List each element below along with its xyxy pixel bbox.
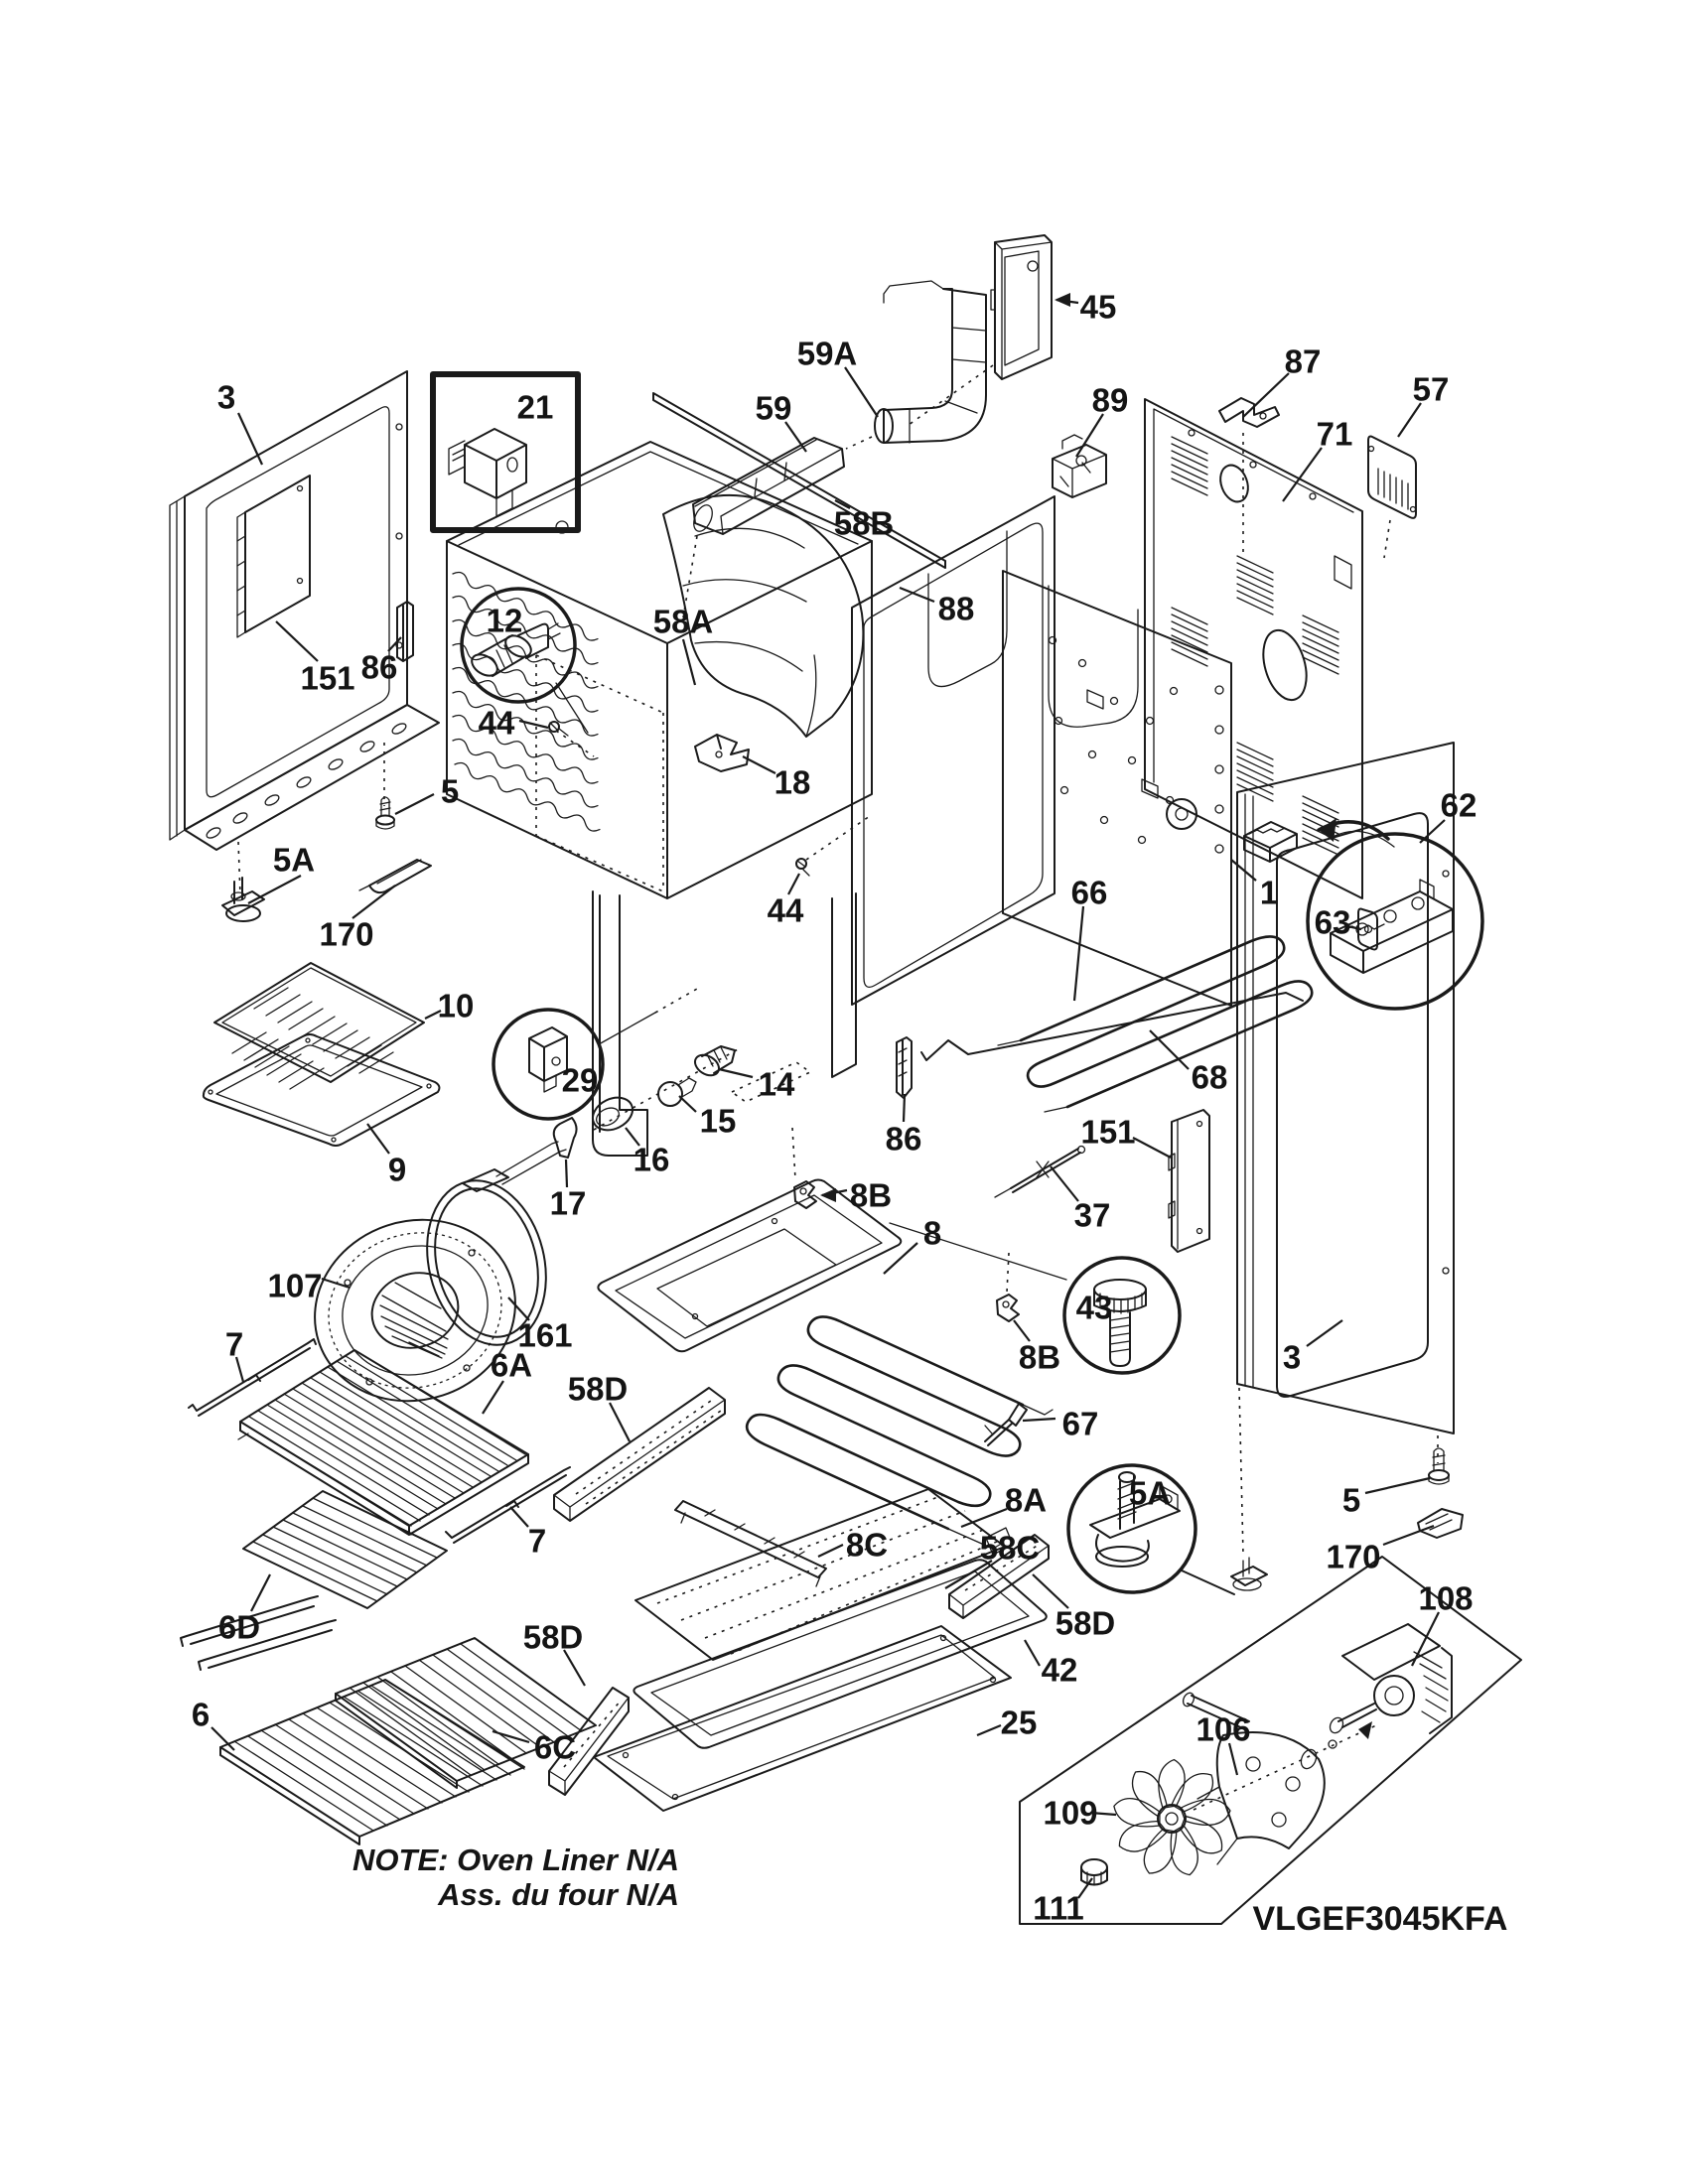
- leader-line-58D: [1033, 1574, 1068, 1608]
- rack-slide-7-upper: [189, 1339, 316, 1416]
- leader-line-6C: [492, 1731, 529, 1742]
- oven-rack-6A: [238, 1350, 528, 1535]
- clip-17: [554, 1118, 577, 1158]
- leader-line-88: [900, 588, 934, 602]
- leader-line-67: [1023, 1419, 1055, 1421]
- note-line-2: Ass. du four N/A: [437, 1877, 679, 1912]
- part-label-66: 66: [1071, 875, 1108, 911]
- rack-slide-7-lower: [446, 1467, 570, 1543]
- part-label-89: 89: [1092, 382, 1129, 419]
- part-label-63: 63: [1315, 904, 1351, 941]
- part-label-7: 7: [528, 1523, 546, 1560]
- part-label-151: 151: [1080, 1114, 1135, 1151]
- bracket-86-right: [897, 1037, 912, 1098]
- part-label-151: 151: [300, 660, 354, 697]
- part-label-44: 44: [479, 705, 515, 742]
- leader-line-59A: [845, 367, 878, 417]
- part-label-1: 1: [1260, 875, 1278, 911]
- leader-line-6D: [251, 1574, 270, 1611]
- fan-motor-108: [1299, 1624, 1452, 1771]
- leader-line-170: [1383, 1526, 1434, 1545]
- part-label-29: 29: [562, 1062, 599, 1099]
- note-line-1: NOTE: Oven Liner N/A: [352, 1843, 679, 1877]
- leader-line-15: [679, 1096, 696, 1112]
- part-label-5: 5: [441, 773, 459, 810]
- part-label-7: 7: [225, 1326, 243, 1363]
- broiler-pan-9: [204, 1034, 440, 1146]
- leader-line-86: [904, 1094, 905, 1122]
- leader-line-7: [510, 1507, 528, 1527]
- lamp-bulb-15: [658, 1082, 682, 1106]
- model-number: VLGEF3045KFA: [1253, 1900, 1508, 1938]
- part-label-59A: 59A: [797, 336, 858, 372]
- vent-duct-59: [690, 438, 844, 534]
- part-label-6D: 6D: [218, 1609, 260, 1646]
- leader-line-17: [566, 1160, 567, 1187]
- bottom-panel-25: [594, 1626, 1011, 1811]
- part-label-67: 67: [1062, 1406, 1099, 1442]
- leader-line-57: [1398, 403, 1421, 437]
- part-label-86: 86: [361, 649, 398, 686]
- leader-line-66: [1074, 906, 1083, 1001]
- bracket-170-left: [359, 860, 431, 892]
- part-label-88: 88: [938, 591, 975, 627]
- broiler-insert-10: [214, 963, 424, 1089]
- part-label-37: 37: [1074, 1197, 1111, 1234]
- leader-line-25: [977, 1725, 1001, 1735]
- leader-line-151: [1133, 1138, 1171, 1158]
- assembly-lines: [238, 365, 1438, 1810]
- part-label-17: 17: [550, 1185, 587, 1222]
- trim-strip-58B: [653, 393, 945, 568]
- insulation-strip-58D-a: [554, 1388, 725, 1521]
- part-label-45: 45: [1080, 289, 1117, 326]
- screw-5-left: [376, 797, 394, 829]
- part-label-58D: 58D: [1055, 1605, 1116, 1642]
- part-label-5: 5: [1342, 1482, 1360, 1519]
- part-label-87: 87: [1285, 343, 1322, 380]
- part-label-15: 15: [700, 1103, 737, 1140]
- clip-18: [695, 735, 749, 771]
- element-support-8C: [675, 1501, 826, 1586]
- leader-line-8: [884, 1243, 917, 1274]
- part-label-6C: 6C: [534, 1729, 576, 1766]
- insulation-panel-88: [852, 496, 1055, 1005]
- part-label-8: 8: [923, 1215, 941, 1252]
- fan-blade-109: [1112, 1758, 1232, 1877]
- clip-8B-lower: [997, 1295, 1019, 1321]
- part-label-18: 18: [774, 764, 811, 801]
- part-label-8B: 8B: [1019, 1339, 1060, 1376]
- bracket-89: [1053, 435, 1106, 497]
- part-label-3: 3: [217, 379, 235, 416]
- bolt-position-line: [890, 1223, 1066, 1280]
- screw-5-right: [1429, 1448, 1449, 1484]
- part-label-58D: 58D: [568, 1371, 629, 1408]
- range-parts-diagram: VLGEF3045KFA NOTE: Oven Liner N/A Ass. d…: [0, 0, 1688, 2184]
- part-label-12: 12: [487, 603, 523, 639]
- part-label-44: 44: [768, 892, 804, 929]
- fan-cover-107: [291, 1194, 539, 1427]
- part-label-9: 9: [388, 1152, 406, 1188]
- arrowhead-motor: [1358, 1721, 1372, 1739]
- part-label-8A: 8A: [1005, 1482, 1047, 1519]
- part-label-111: 111: [1033, 1890, 1083, 1927]
- part-label-107: 107: [267, 1268, 322, 1304]
- part-label-8B: 8B: [850, 1177, 892, 1214]
- part-label-86: 86: [886, 1121, 922, 1158]
- part-label-21: 21: [517, 389, 554, 426]
- insulation-panel-151-left: [237, 476, 310, 637]
- part-label-5A: 5A: [273, 842, 315, 879]
- part-label-108: 108: [1418, 1580, 1473, 1617]
- bracket-170-right: [1418, 1509, 1463, 1538]
- leader-line-1: [1231, 860, 1256, 881]
- part-label-5A: 5A: [1129, 1475, 1171, 1512]
- insulation-panel-151-right: [1169, 1110, 1209, 1252]
- screw-44b: [796, 859, 809, 876]
- leader-line-3: [1307, 1320, 1342, 1346]
- terminal-block-target: [1244, 822, 1297, 862]
- leader-line-42: [1025, 1640, 1040, 1666]
- part-label-106: 106: [1196, 1711, 1250, 1748]
- part-label-43: 43: [1076, 1290, 1113, 1326]
- part-label-62: 62: [1441, 787, 1477, 824]
- inset-box-21: [433, 374, 578, 530]
- part-label-170: 170: [1326, 1539, 1380, 1575]
- part-label-58D: 58D: [523, 1619, 584, 1656]
- leader-line-5: [1365, 1478, 1430, 1493]
- rear-panel-1: [1003, 571, 1231, 1006]
- leader-line-151: [276, 621, 318, 661]
- part-label-68: 68: [1192, 1059, 1228, 1096]
- part-label-25: 25: [1001, 1705, 1038, 1741]
- leader-line-45: [1056, 300, 1078, 303]
- part-label-8C: 8C: [846, 1527, 888, 1564]
- leader-line-6A: [483, 1381, 503, 1414]
- base-panel-42: [633, 1560, 1046, 1748]
- part-label-58A: 58A: [653, 604, 714, 640]
- side-panel-3-left: [170, 371, 439, 850]
- broil-element-66: [998, 936, 1312, 1112]
- vent-cover-57: [1368, 437, 1416, 518]
- oven-liner-note: NOTE: Oven Liner N/A Ass. du four N/A: [352, 1843, 679, 1912]
- probe-37: [995, 1147, 1085, 1198]
- leader-line-58D: [610, 1403, 630, 1441]
- leader-line-5A: [248, 876, 301, 903]
- part-label-58C: 58C: [980, 1530, 1041, 1567]
- part-label-10: 10: [438, 988, 475, 1024]
- leader-line-14: [719, 1069, 753, 1077]
- bracket-86-left: [397, 602, 413, 661]
- part-label-59: 59: [756, 390, 792, 427]
- leader-line-106: [1229, 1743, 1237, 1775]
- leader-line-5: [395, 794, 434, 814]
- part-label-14: 14: [759, 1066, 795, 1103]
- leader-line-44: [519, 721, 548, 728]
- screw-67: [985, 1404, 1027, 1445]
- bake-element-8A: [747, 1316, 1053, 1555]
- part-label-6A: 6A: [491, 1347, 532, 1384]
- part-label-109: 109: [1043, 1795, 1097, 1832]
- vent-cover-45: [991, 235, 1070, 379]
- vent-duct-59A: [875, 281, 986, 443]
- part-label-16: 16: [633, 1142, 670, 1178]
- part-label-58B: 58B: [834, 505, 895, 542]
- part-label-57: 57: [1413, 371, 1450, 408]
- leader-line-9: [367, 1124, 389, 1154]
- leader-line-3: [238, 413, 262, 465]
- part-label-42: 42: [1042, 1652, 1078, 1689]
- part-label-3: 3: [1283, 1339, 1301, 1376]
- part-label-6: 6: [192, 1697, 210, 1733]
- part-label-71: 71: [1317, 416, 1353, 453]
- side-panel-3-right: [1237, 743, 1454, 1433]
- leader-line-18: [743, 756, 775, 773]
- nut-111: [1081, 1859, 1107, 1885]
- leveling-foot-5A-right: [1231, 1558, 1267, 1590]
- part-label-170: 170: [319, 916, 373, 953]
- leader-line-8C: [818, 1545, 843, 1557]
